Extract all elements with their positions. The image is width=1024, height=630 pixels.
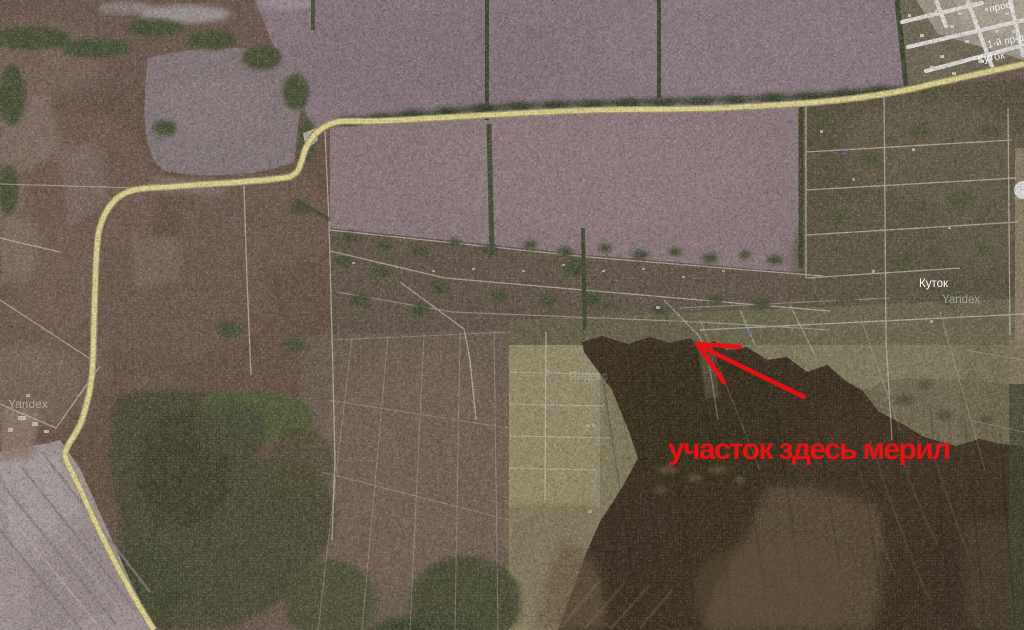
- svg-text:Куток: Куток: [919, 278, 949, 290]
- svg-text:Yandex: Yandex: [942, 294, 980, 306]
- svg-text:Yandex: Yandex: [8, 397, 48, 411]
- svg-text:Яндекс: Яндекс: [569, 371, 608, 383]
- svg-text:участок здесь мерил: участок здесь мерил: [668, 433, 949, 466]
